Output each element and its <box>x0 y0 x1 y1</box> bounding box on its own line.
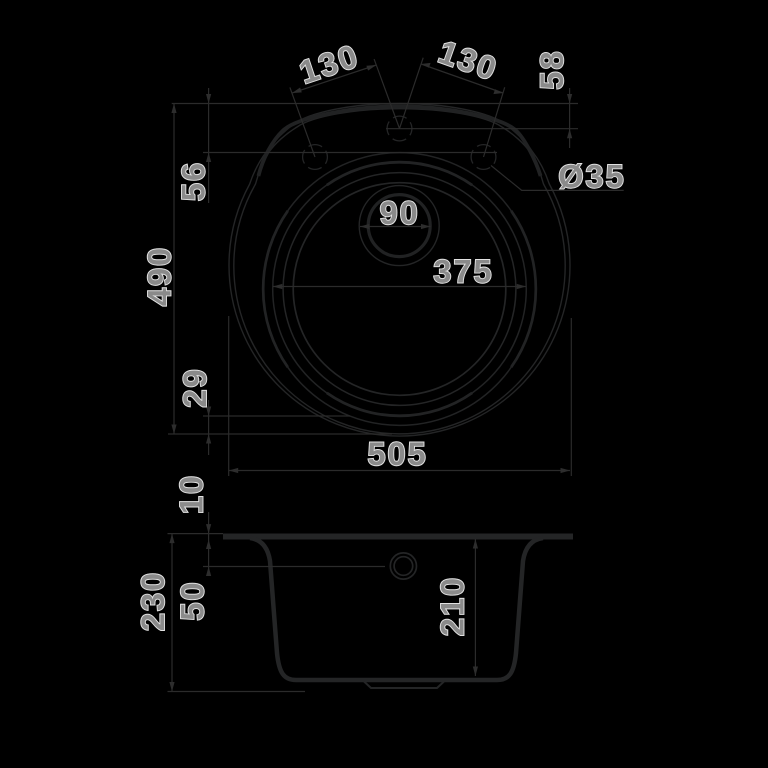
svg-text:230: 230 <box>135 571 171 631</box>
svg-text:50: 50 <box>175 580 211 620</box>
svg-text:58: 58 <box>534 49 570 89</box>
svg-text:29: 29 <box>177 367 213 407</box>
svg-text:210: 210 <box>435 576 471 636</box>
svg-text:375: 375 <box>433 254 493 290</box>
svg-text:10: 10 <box>174 474 210 514</box>
svg-text:505: 505 <box>367 436 427 472</box>
svg-text:90: 90 <box>380 195 420 231</box>
svg-text:56: 56 <box>176 161 212 201</box>
svg-text:Ø35: Ø35 <box>558 158 625 194</box>
svg-text:490: 490 <box>141 246 177 306</box>
